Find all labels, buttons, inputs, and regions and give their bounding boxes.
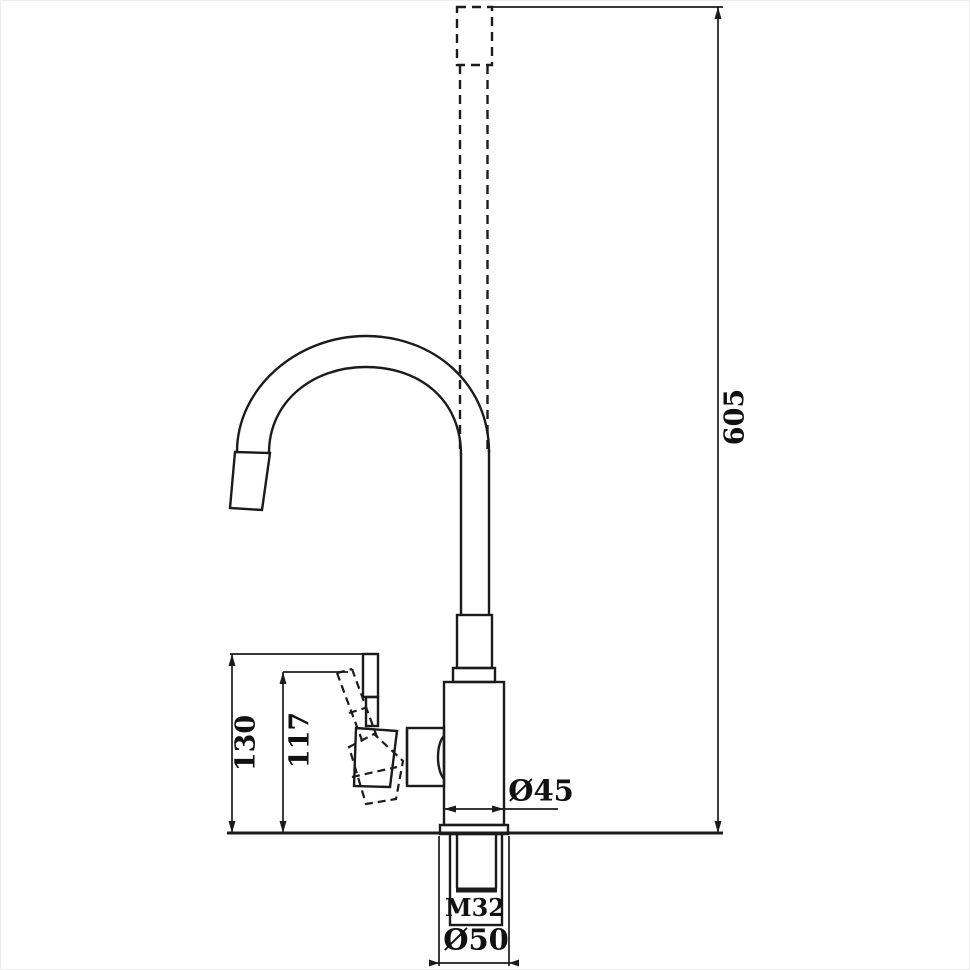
handle-top-height-label: 130 bbox=[233, 715, 260, 771]
spout-gooseneck bbox=[237, 336, 489, 615]
faucet-body bbox=[438, 682, 508, 834]
thread-size-label: M32 bbox=[445, 896, 505, 920]
overall-height-label: 605 bbox=[722, 389, 749, 445]
pullout-head-dashed bbox=[457, 7, 492, 452]
faucet-line-art bbox=[0, 0, 970, 970]
technical-drawing-canvas: 605 130 117 Ø45 M32 Ø50 bbox=[0, 0, 970, 970]
handle-dashed bbox=[337, 669, 403, 804]
handle-solid bbox=[354, 654, 444, 787]
base-diameter-label: Ø50 bbox=[443, 926, 509, 955]
tube-coupler bbox=[453, 615, 495, 682]
handle-pivot-height-label: 117 bbox=[287, 712, 314, 768]
spray-nozzle bbox=[230, 452, 270, 510]
dimension-overall-height bbox=[492, 7, 723, 833]
body-diameter-label: Ø45 bbox=[508, 777, 574, 806]
